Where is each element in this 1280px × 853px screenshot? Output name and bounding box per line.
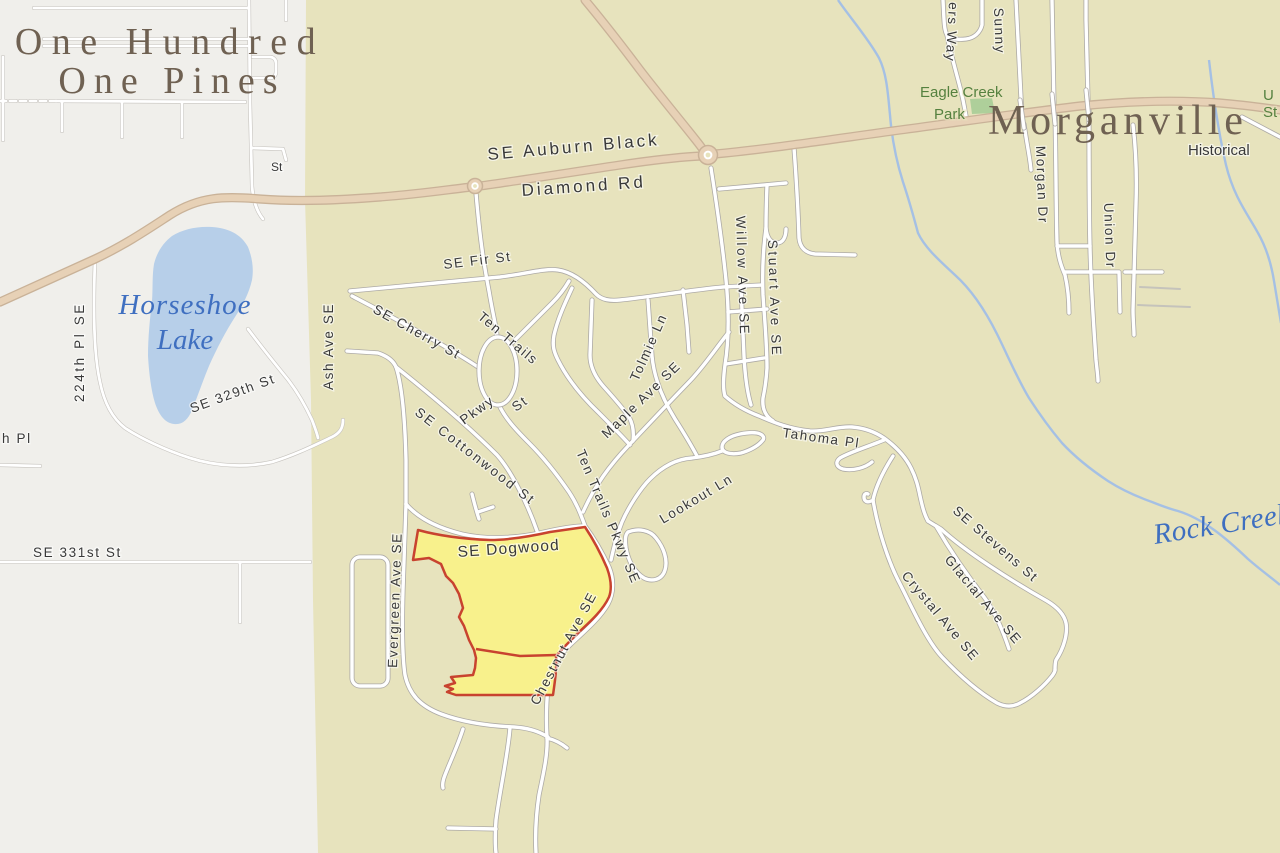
svg-text:h Pl: h Pl — [2, 431, 32, 446]
svg-text:Ash Ave SE: Ash Ave SE — [321, 303, 336, 390]
svg-text:Morgan Dr: Morgan Dr — [1033, 146, 1051, 225]
svg-text:One Hundred: One Hundred — [15, 21, 325, 63]
svg-text:Union Dr: Union Dr — [1101, 203, 1118, 270]
svg-text:Lake: Lake — [156, 324, 214, 356]
svg-text:Sunny: Sunny — [991, 8, 1008, 55]
svg-text:Park: Park — [934, 106, 965, 123]
svg-text:St: St — [271, 160, 283, 174]
svg-text:SE 331st St: SE 331st St — [33, 545, 122, 560]
svg-text:ers Way: ers Way — [943, 2, 961, 63]
svg-text:Historical: Historical — [1188, 142, 1250, 159]
svg-text:St: St — [1263, 104, 1278, 121]
svg-text:Morganville: Morganville — [988, 98, 1248, 144]
svg-text:224th Pl SE: 224th Pl SE — [72, 302, 87, 402]
svg-text:Horseshoe: Horseshoe — [117, 289, 251, 321]
svg-text:Eagle Creek: Eagle Creek — [920, 84, 1003, 101]
svg-text:U: U — [1263, 87, 1274, 104]
svg-text:One Pines: One Pines — [58, 60, 285, 102]
